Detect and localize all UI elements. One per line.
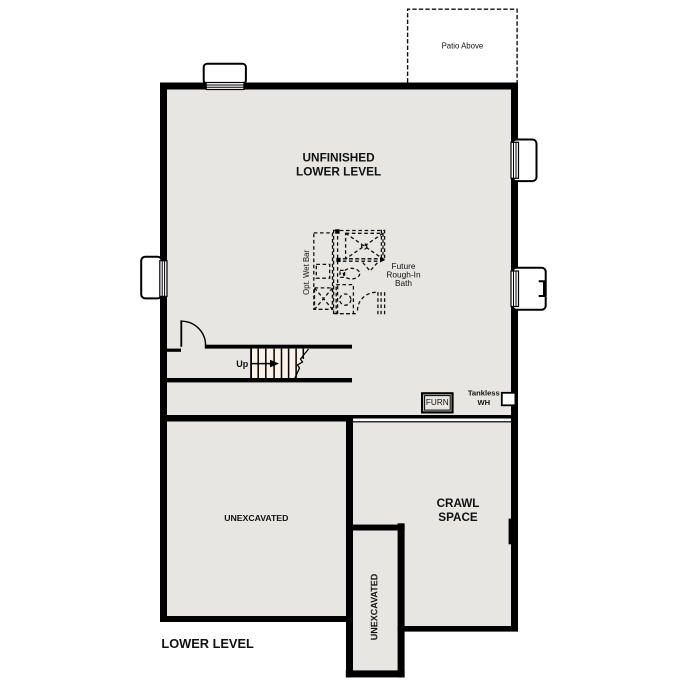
- svg-text:Patio Above: Patio Above: [442, 42, 484, 51]
- svg-text:CRAWL: CRAWL: [437, 497, 480, 510]
- svg-text:UNFINISHED: UNFINISHED: [303, 151, 376, 165]
- svg-text:UNEXCAVATED: UNEXCAVATED: [369, 573, 379, 640]
- svg-text:Tankless: Tankless: [468, 389, 500, 398]
- svg-text:WH: WH: [477, 398, 490, 407]
- svg-text:LOWER LEVEL: LOWER LEVEL: [161, 636, 254, 651]
- svg-text:LOWER LEVEL: LOWER LEVEL: [296, 165, 381, 179]
- svg-text:Bath: Bath: [395, 278, 412, 288]
- svg-text:FURN: FURN: [426, 398, 449, 407]
- svg-text:SPACE: SPACE: [438, 511, 478, 524]
- svg-text:Up: Up: [236, 359, 248, 369]
- svg-text:Opt. Wet Bar: Opt. Wet Bar: [302, 250, 311, 295]
- svg-text:UNEXCAVATED: UNEXCAVATED: [224, 513, 288, 523]
